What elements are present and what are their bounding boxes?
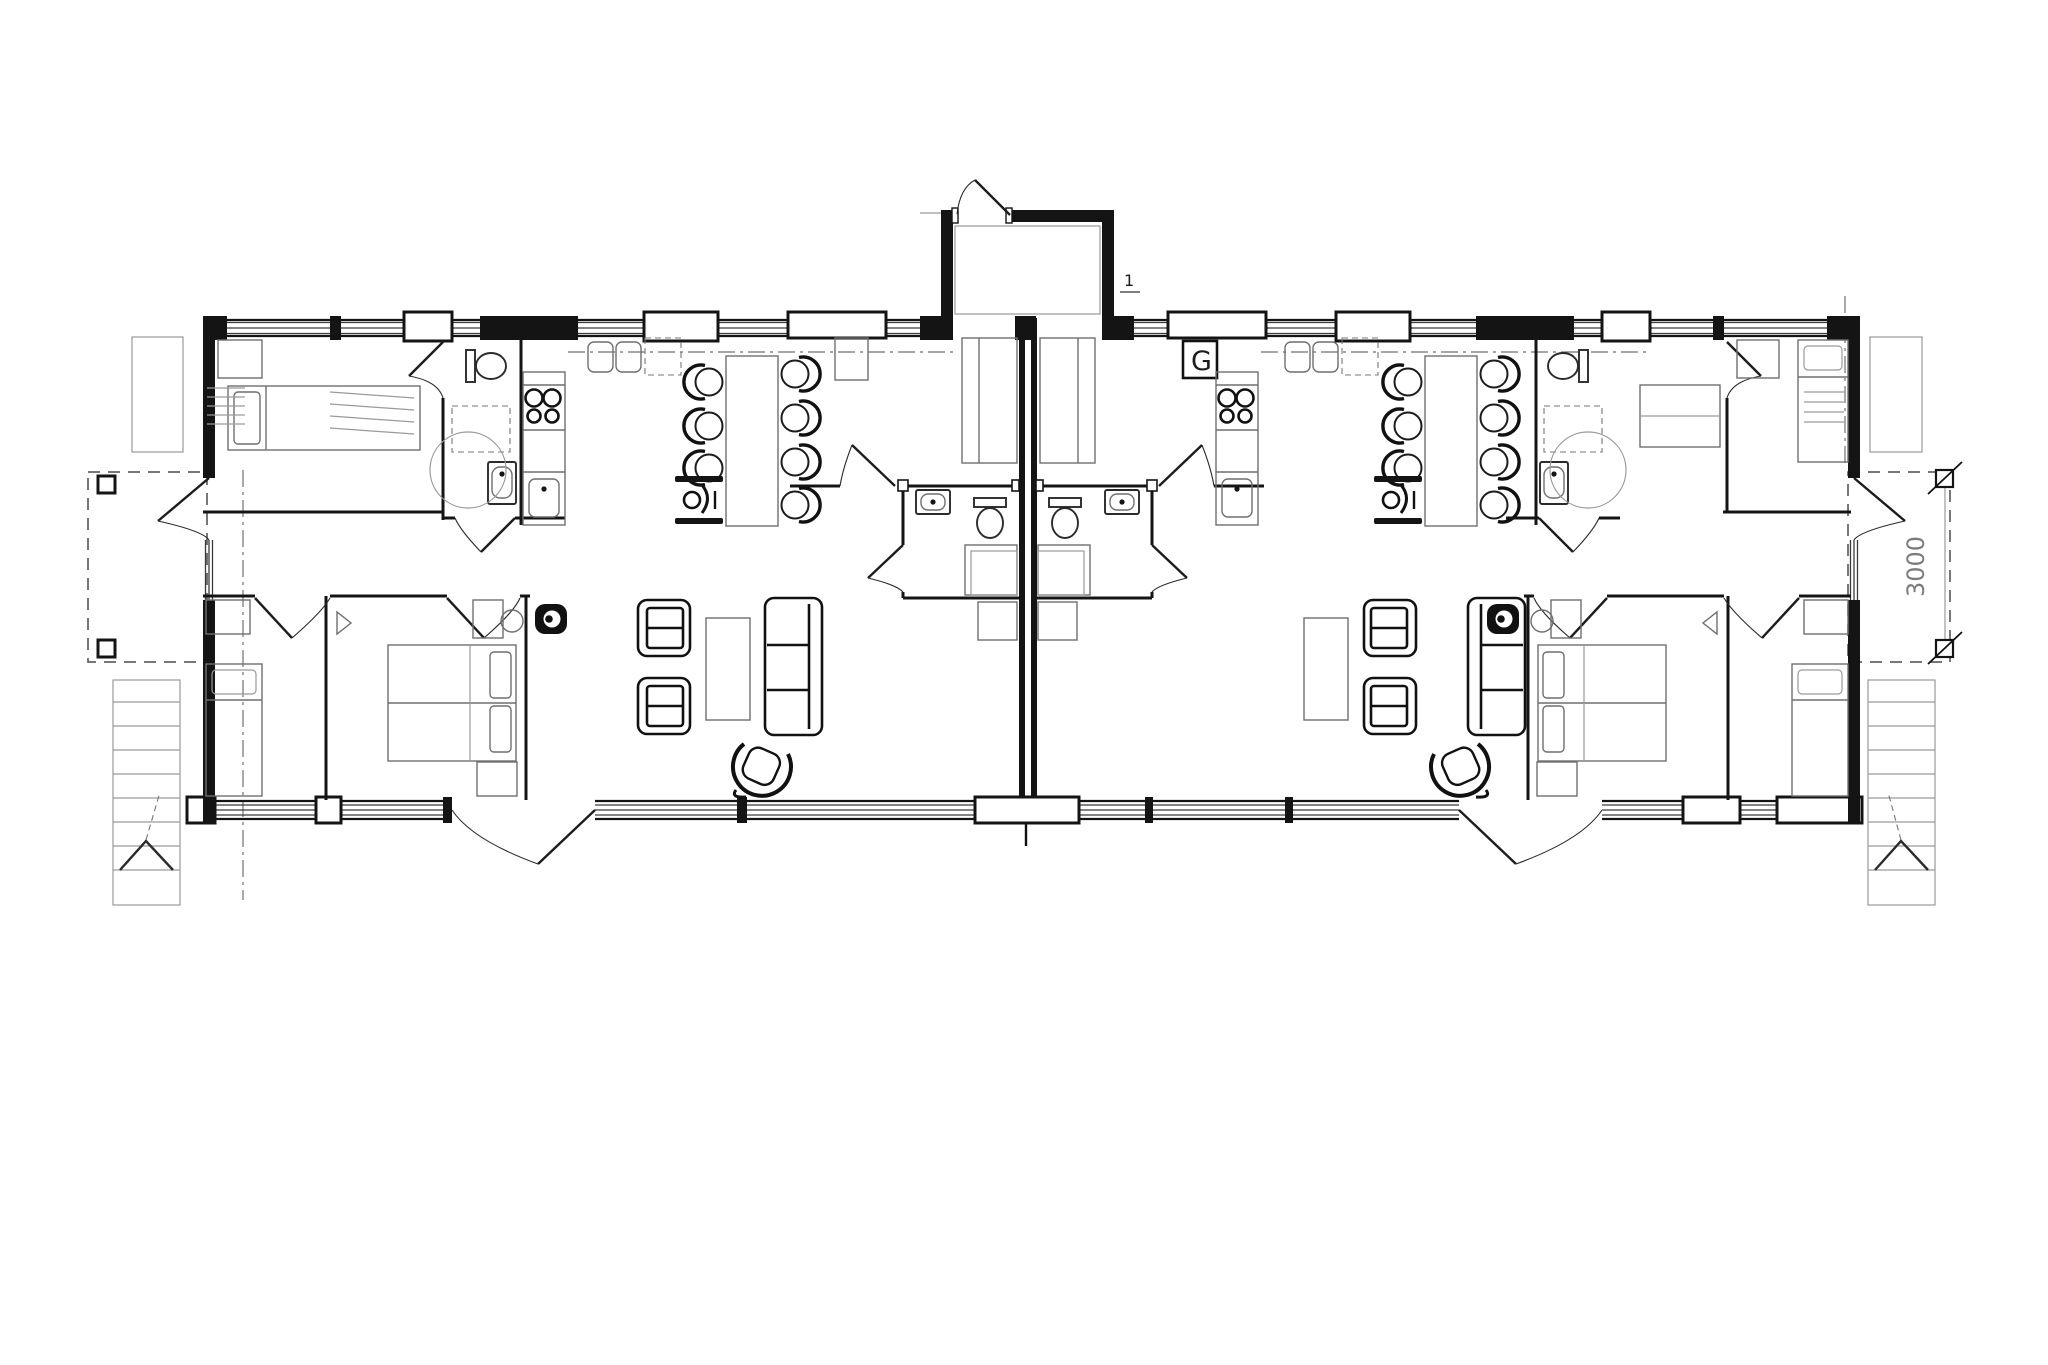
closet bbox=[1038, 602, 1077, 640]
dining-chair-icon bbox=[782, 357, 821, 391]
party-wall-foot-pier bbox=[975, 797, 1079, 823]
washbasin-icon bbox=[1105, 490, 1139, 514]
deck-depth-dimension-label: 3000 bbox=[1902, 536, 1930, 597]
central-bathroom-right bbox=[1036, 480, 1187, 640]
front-door bbox=[975, 180, 1010, 215]
stairs-arrow-icon bbox=[1875, 841, 1928, 870]
upper-cabinet bbox=[588, 342, 613, 372]
coffee-table bbox=[706, 618, 750, 720]
triangle-marker bbox=[1703, 612, 1717, 634]
dining-chair-icon bbox=[1481, 445, 1520, 479]
bedroom-northwest bbox=[203, 340, 443, 520]
wood-stove-icon bbox=[1487, 604, 1519, 634]
bedside-table bbox=[1537, 762, 1577, 796]
washing-machine bbox=[1544, 406, 1602, 452]
stool bbox=[501, 610, 523, 632]
deck-left bbox=[88, 472, 207, 662]
tall-cabinet bbox=[1342, 338, 1378, 375]
party-wall bbox=[1019, 318, 1037, 798]
dining-table bbox=[1425, 356, 1477, 526]
toilet-icon bbox=[1548, 350, 1588, 382]
triangle-marker bbox=[337, 612, 351, 634]
planter-left bbox=[132, 337, 183, 452]
armchair-icon bbox=[638, 600, 690, 656]
washbasin-icon bbox=[916, 490, 950, 514]
kitchen-sink-icon bbox=[529, 479, 559, 517]
stairs-left bbox=[113, 680, 180, 905]
upper-cabinet bbox=[1313, 342, 1338, 372]
wardrobe bbox=[218, 340, 262, 378]
planter-right bbox=[1870, 337, 1922, 452]
wardrobe-label: G bbox=[1191, 346, 1212, 377]
double-bed-icon bbox=[1538, 645, 1666, 761]
swivel-chair-icon bbox=[733, 744, 791, 797]
hall-closet bbox=[962, 338, 1017, 463]
bedrooms-south-left bbox=[203, 596, 530, 800]
swivel-chair-icon bbox=[1431, 744, 1489, 797]
double-bed-icon bbox=[228, 386, 420, 450]
dining-chair-icon bbox=[684, 409, 723, 443]
wheelchair-icon bbox=[675, 476, 723, 524]
upper-cabinet bbox=[1285, 342, 1310, 372]
bathroom-left-unit bbox=[430, 338, 565, 552]
bathroom-right-unit bbox=[1506, 338, 1626, 552]
dining-chair-icon bbox=[782, 445, 821, 479]
stairs-arrow-icon bbox=[120, 841, 173, 870]
stove-burners-icon bbox=[526, 390, 561, 423]
armchair-icon bbox=[1364, 600, 1416, 656]
deck-right bbox=[1848, 472, 1950, 662]
stairs-right bbox=[1868, 680, 1935, 905]
single-bed-icon bbox=[1798, 340, 1848, 462]
floor-plan-page: 3000 bbox=[0, 0, 2048, 1365]
toilet-icon bbox=[466, 350, 506, 382]
deck-post-icon bbox=[98, 640, 115, 657]
dining-chair-icon bbox=[782, 488, 821, 522]
closet bbox=[978, 602, 1017, 640]
dining-chair-icon bbox=[1481, 357, 1520, 391]
door-mark-label: 1 bbox=[1124, 271, 1134, 290]
washbasin-icon bbox=[1540, 462, 1568, 504]
unit-left bbox=[203, 338, 1019, 864]
wardrobe bbox=[1804, 600, 1848, 634]
dining-chair-icon bbox=[1481, 401, 1520, 435]
wheelchair-icon bbox=[1374, 476, 1422, 524]
dining-chair-icon bbox=[782, 401, 821, 435]
double-bed-icon bbox=[388, 645, 516, 761]
bedside-table bbox=[477, 762, 517, 796]
coffee-table bbox=[1304, 618, 1348, 720]
sofa-icon bbox=[765, 598, 822, 735]
toilet-icon bbox=[974, 498, 1006, 538]
washing-machine bbox=[452, 406, 510, 452]
living-room-left bbox=[452, 598, 822, 864]
hall-closet bbox=[1040, 338, 1095, 463]
sideboard bbox=[835, 338, 868, 380]
dining-table bbox=[726, 356, 778, 526]
dining-right-unit bbox=[1374, 356, 1519, 526]
upper-cabinet bbox=[616, 342, 641, 372]
wood-stove-icon bbox=[535, 604, 567, 634]
deck-post-icon bbox=[98, 476, 115, 493]
bedroom-northeast bbox=[1640, 340, 1851, 512]
shower bbox=[1038, 545, 1090, 595]
toilet-icon bbox=[1049, 498, 1081, 538]
dimension-3000: 3000 bbox=[1902, 462, 1962, 664]
dining-chair-icon bbox=[1383, 365, 1422, 399]
shower bbox=[965, 545, 1017, 595]
dining-chair-icon bbox=[684, 365, 723, 399]
wardrobe-g: G bbox=[1183, 341, 1217, 378]
tall-cabinet bbox=[645, 338, 681, 375]
unit-right: G bbox=[1036, 338, 1851, 864]
dining-chair-icon bbox=[1383, 409, 1422, 443]
armchair-icon bbox=[638, 678, 690, 734]
dining-left-unit bbox=[675, 356, 820, 526]
entrance-vestibule: 1 bbox=[920, 180, 1140, 340]
right-exterior-wall bbox=[1848, 318, 1905, 822]
single-bed-icon bbox=[1792, 664, 1848, 796]
terrace-door bbox=[538, 810, 595, 864]
armchair-icon bbox=[1364, 678, 1416, 734]
stool bbox=[1531, 610, 1553, 632]
floor-plan-drawing: 3000 bbox=[0, 0, 2048, 1365]
terrace-door bbox=[1459, 810, 1516, 864]
hall-left-unit bbox=[790, 338, 1017, 486]
stove-burners-icon bbox=[1219, 390, 1254, 423]
bedrooms-south-right bbox=[1524, 596, 1851, 800]
washbasin-icon bbox=[488, 462, 516, 504]
central-bathroom-left bbox=[868, 480, 1019, 640]
